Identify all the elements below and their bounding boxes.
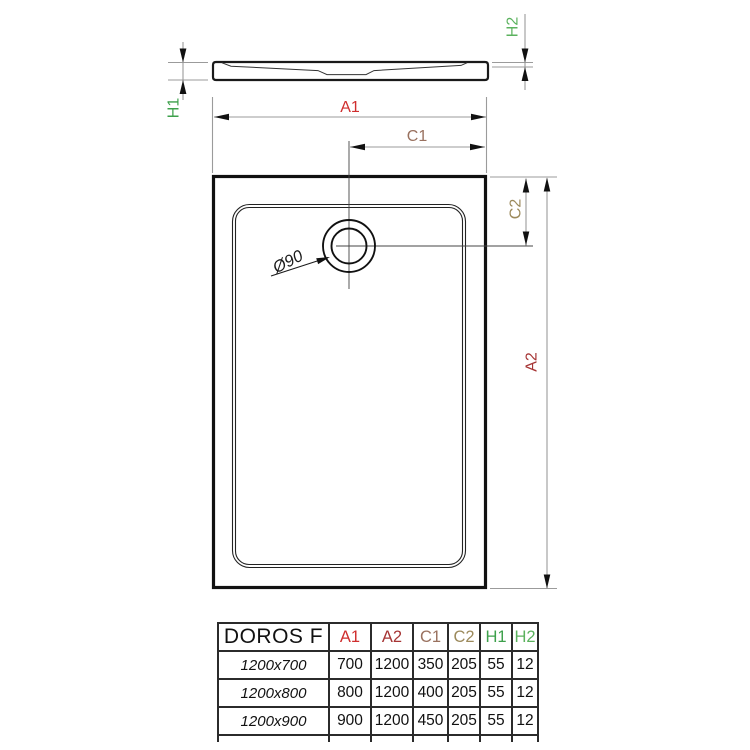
h2-arrow-top xyxy=(522,49,529,63)
h2-arrow-bottom xyxy=(522,67,529,81)
table-cell: 55 xyxy=(480,651,512,679)
table-cell: 12 xyxy=(512,707,538,735)
a2-arrow-bottom xyxy=(544,575,551,589)
side-view xyxy=(213,62,488,80)
c2-arrow-bottom xyxy=(523,232,530,246)
table-cell: 205 xyxy=(448,651,480,679)
column-header-h2: H2 xyxy=(512,623,538,651)
table-cell: 1200 xyxy=(371,651,413,679)
table-cell xyxy=(512,735,538,742)
table-cell: 800 xyxy=(329,679,371,707)
table-cell: 55 xyxy=(480,707,512,735)
table-cell xyxy=(329,735,371,742)
table-cropped-row xyxy=(218,735,538,742)
a2-label: A2 xyxy=(524,352,541,372)
c1-label: C1 xyxy=(407,128,428,145)
table-cell: 12 xyxy=(512,679,538,707)
c1-arrow-left xyxy=(350,144,365,151)
column-header-c1: C1 xyxy=(413,623,448,651)
table-cell xyxy=(413,735,448,742)
c2-arrow-top xyxy=(523,179,530,193)
h2-label: H2 xyxy=(505,17,522,38)
tray-outer-edge xyxy=(214,177,486,588)
table-cell: 900 xyxy=(329,707,371,735)
size-cell: 1200x700 xyxy=(218,651,329,679)
a1-arrow-right xyxy=(471,114,486,121)
table-cell: 700 xyxy=(329,651,371,679)
shower-tray-technical-drawing: H1 H2 A1 C1 xyxy=(0,0,750,750)
h1-dimension xyxy=(168,42,208,100)
table-header-row: DOROS F A1 A2 C1 C2 H1 H2 xyxy=(218,623,538,651)
h1-label: H1 xyxy=(166,98,183,119)
table-cell xyxy=(480,735,512,742)
side-view-outline xyxy=(213,62,488,80)
a1-arrow-left xyxy=(214,114,229,121)
table-cell: 55 xyxy=(480,679,512,707)
a2-arrow-top xyxy=(544,178,551,192)
table-cell: 1200 xyxy=(371,679,413,707)
size-cell: 1200x800 xyxy=(218,679,329,707)
table-cell: 450 xyxy=(413,707,448,735)
h1-arrow-top xyxy=(180,49,187,63)
table-cell: 205 xyxy=(448,679,480,707)
tray-diagram: H1 H2 A1 C1 xyxy=(0,0,750,615)
table-row: 1200x700 700 1200 350 205 55 12 xyxy=(218,651,538,679)
table-cell: 12 xyxy=(512,651,538,679)
size-cell: 1200x900 xyxy=(218,707,329,735)
h1-arrow-bottom xyxy=(180,80,187,94)
table-cell: 1200 xyxy=(371,707,413,735)
table-cell: 350 xyxy=(413,651,448,679)
c1-arrow-right xyxy=(470,144,485,151)
c2-label: C2 xyxy=(508,199,525,220)
product-name: DOROS F xyxy=(218,623,329,651)
column-header-h1: H1 xyxy=(480,623,512,651)
table-cell xyxy=(218,735,329,742)
table-cell xyxy=(448,735,480,742)
top-view: Ø90 xyxy=(214,141,534,588)
table-cell xyxy=(371,735,413,742)
table-cell: 205 xyxy=(448,707,480,735)
table-row: 1200x800 800 1200 400 205 55 12 xyxy=(218,679,538,707)
table-cell: 400 xyxy=(413,679,448,707)
a2-dimension xyxy=(490,179,557,589)
dimensions-table: DOROS F A1 A2 C1 C2 H1 H2 1200x700 700 1… xyxy=(217,622,539,742)
column-header-c2: C2 xyxy=(448,623,480,651)
table-row: 1200x900 900 1200 450 205 55 12 xyxy=(218,707,538,735)
a1-label: A1 xyxy=(340,99,360,116)
column-header-a1: A1 xyxy=(329,623,371,651)
column-header-a2: A2 xyxy=(371,623,413,651)
